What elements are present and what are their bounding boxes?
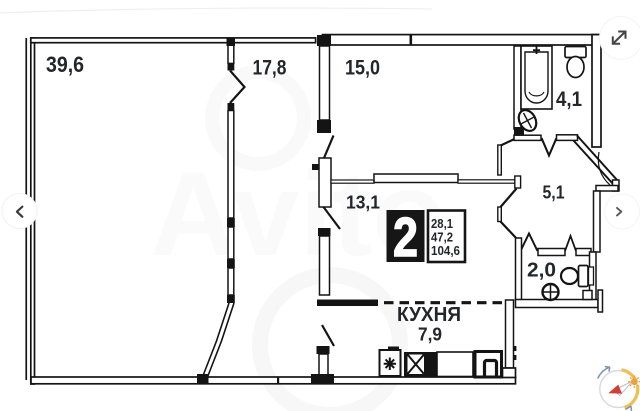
svg-text:28,1: 28,1 (431, 217, 453, 231)
svg-text:17,8: 17,8 (253, 56, 287, 80)
svg-text:39,6: 39,6 (46, 52, 84, 77)
svg-text:2: 2 (393, 206, 418, 268)
svg-text:4,1: 4,1 (556, 88, 582, 111)
svg-text:2,0: 2,0 (527, 259, 556, 282)
svg-text:5,1: 5,1 (543, 182, 565, 203)
svg-text:КУХНЯ: КУХНЯ (397, 304, 461, 326)
svg-text:104,6: 104,6 (431, 244, 460, 258)
svg-text:47,2: 47,2 (431, 231, 453, 245)
svg-text:15,0: 15,0 (345, 56, 380, 80)
svg-text:7,9: 7,9 (418, 325, 442, 345)
svg-text:13,1: 13,1 (346, 192, 380, 213)
